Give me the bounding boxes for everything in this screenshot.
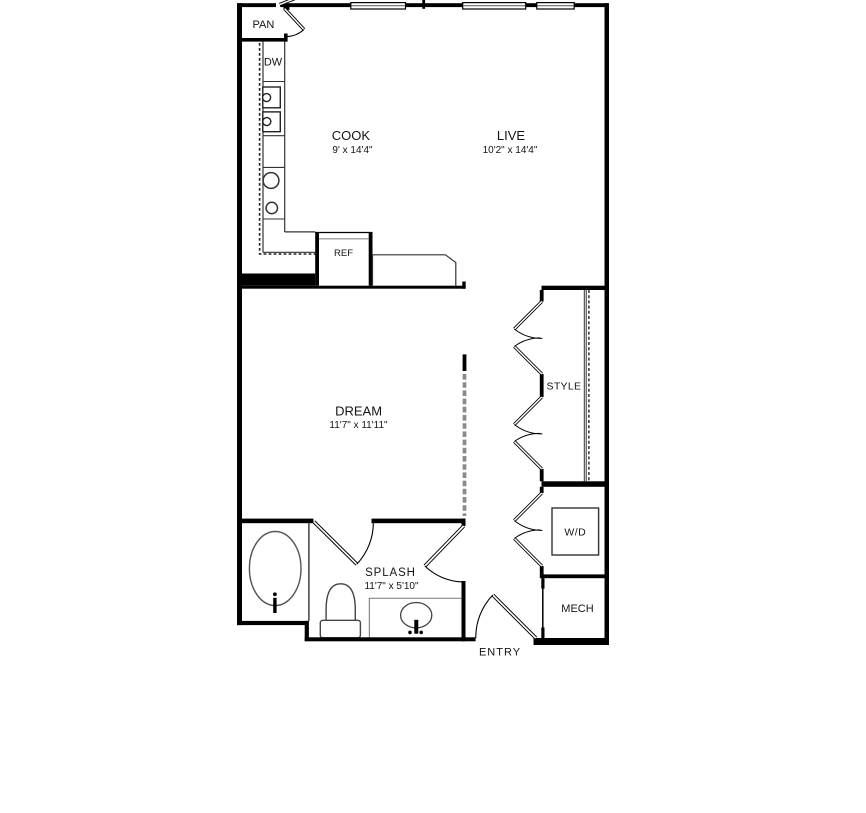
svg-text:DREAM: DREAM: [335, 403, 382, 418]
svg-text:COOK: COOK: [332, 128, 371, 143]
svg-text:9' x 14'4": 9' x 14'4": [332, 145, 373, 156]
svg-text:SPLASH: SPLASH: [365, 567, 416, 579]
svg-text:PAN: PAN: [252, 19, 274, 31]
svg-text:W/D: W/D: [564, 526, 586, 538]
svg-text:REF: REF: [334, 248, 353, 259]
svg-text:DW: DW: [264, 57, 283, 69]
svg-text:11'7" x 11'11": 11'7" x 11'11": [329, 420, 388, 431]
svg-text:ENTRY: ENTRY: [479, 646, 521, 658]
svg-text:10'2" x 14'4": 10'2" x 14'4": [483, 145, 538, 156]
svg-text:11'7" x 5'10": 11'7" x 5'10": [364, 581, 419, 592]
svg-text:MECH: MECH: [561, 603, 593, 615]
svg-text:STYLE: STYLE: [547, 381, 582, 393]
svg-text:LIVE: LIVE: [497, 128, 526, 143]
